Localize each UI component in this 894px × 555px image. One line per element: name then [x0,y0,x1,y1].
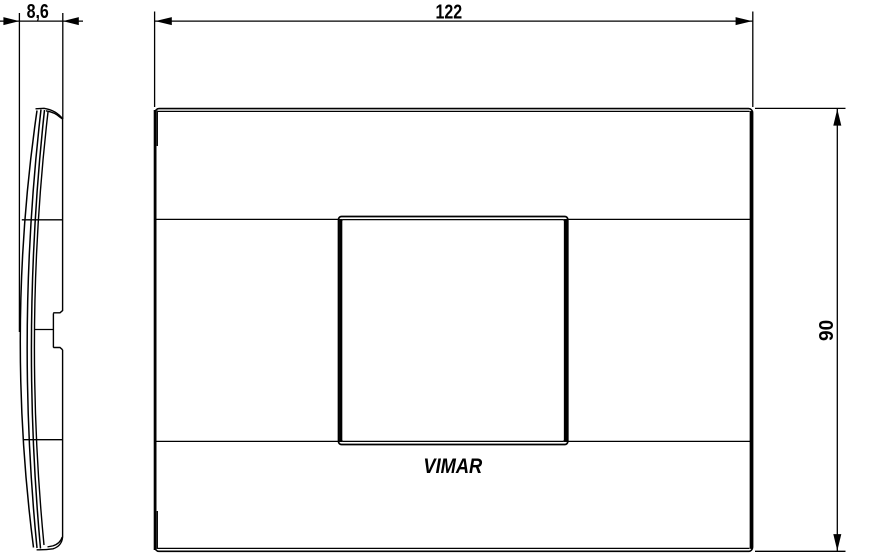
svg-text:122: 122 [435,1,462,23]
svg-text:8,6: 8,6 [27,1,49,23]
svg-text:90: 90 [815,320,838,341]
svg-text:VIMAR: VIMAR [423,455,483,478]
